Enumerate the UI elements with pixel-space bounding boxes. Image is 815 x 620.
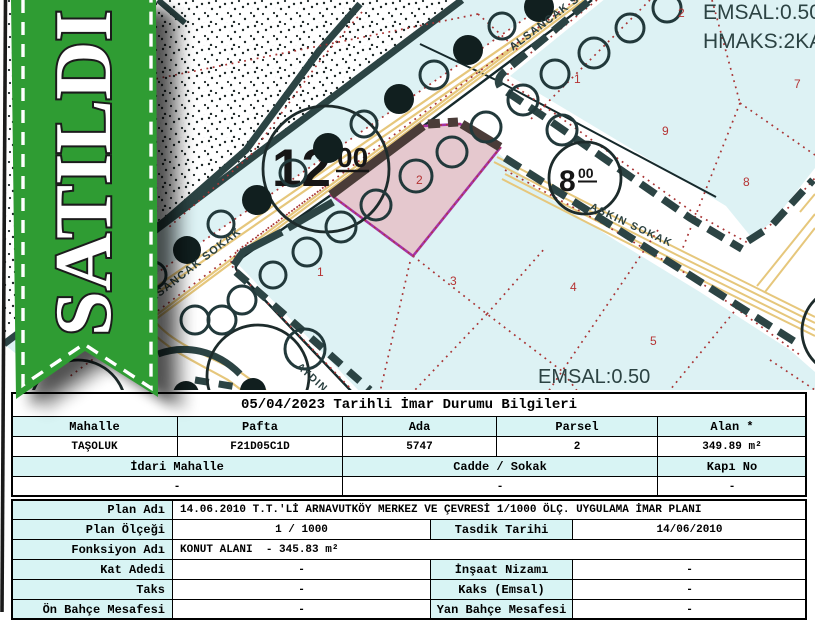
svg-text:2: 2 xyxy=(678,6,685,20)
svg-text:EMSAL:0.50: EMSAL:0.50 xyxy=(703,1,815,24)
svg-text:7: 7 xyxy=(794,77,801,91)
svg-text:00: 00 xyxy=(578,165,594,181)
svg-text:9: 9 xyxy=(662,124,669,138)
svg-text:HMAKS:2KAT: HMAKS:2KAT xyxy=(703,30,815,53)
svg-text:1: 1 xyxy=(574,72,581,86)
svg-text:1: 1 xyxy=(317,265,324,279)
svg-text:5: 5 xyxy=(650,334,657,348)
svg-text:8: 8 xyxy=(743,175,750,189)
svg-text:2: 2 xyxy=(416,173,423,187)
svg-text:3: 3 xyxy=(450,274,457,288)
svg-text:8: 8 xyxy=(559,165,576,198)
svg-text:4: 4 xyxy=(570,280,577,294)
svg-text:EMSAL:0.50: EMSAL:0.50 xyxy=(538,366,650,388)
